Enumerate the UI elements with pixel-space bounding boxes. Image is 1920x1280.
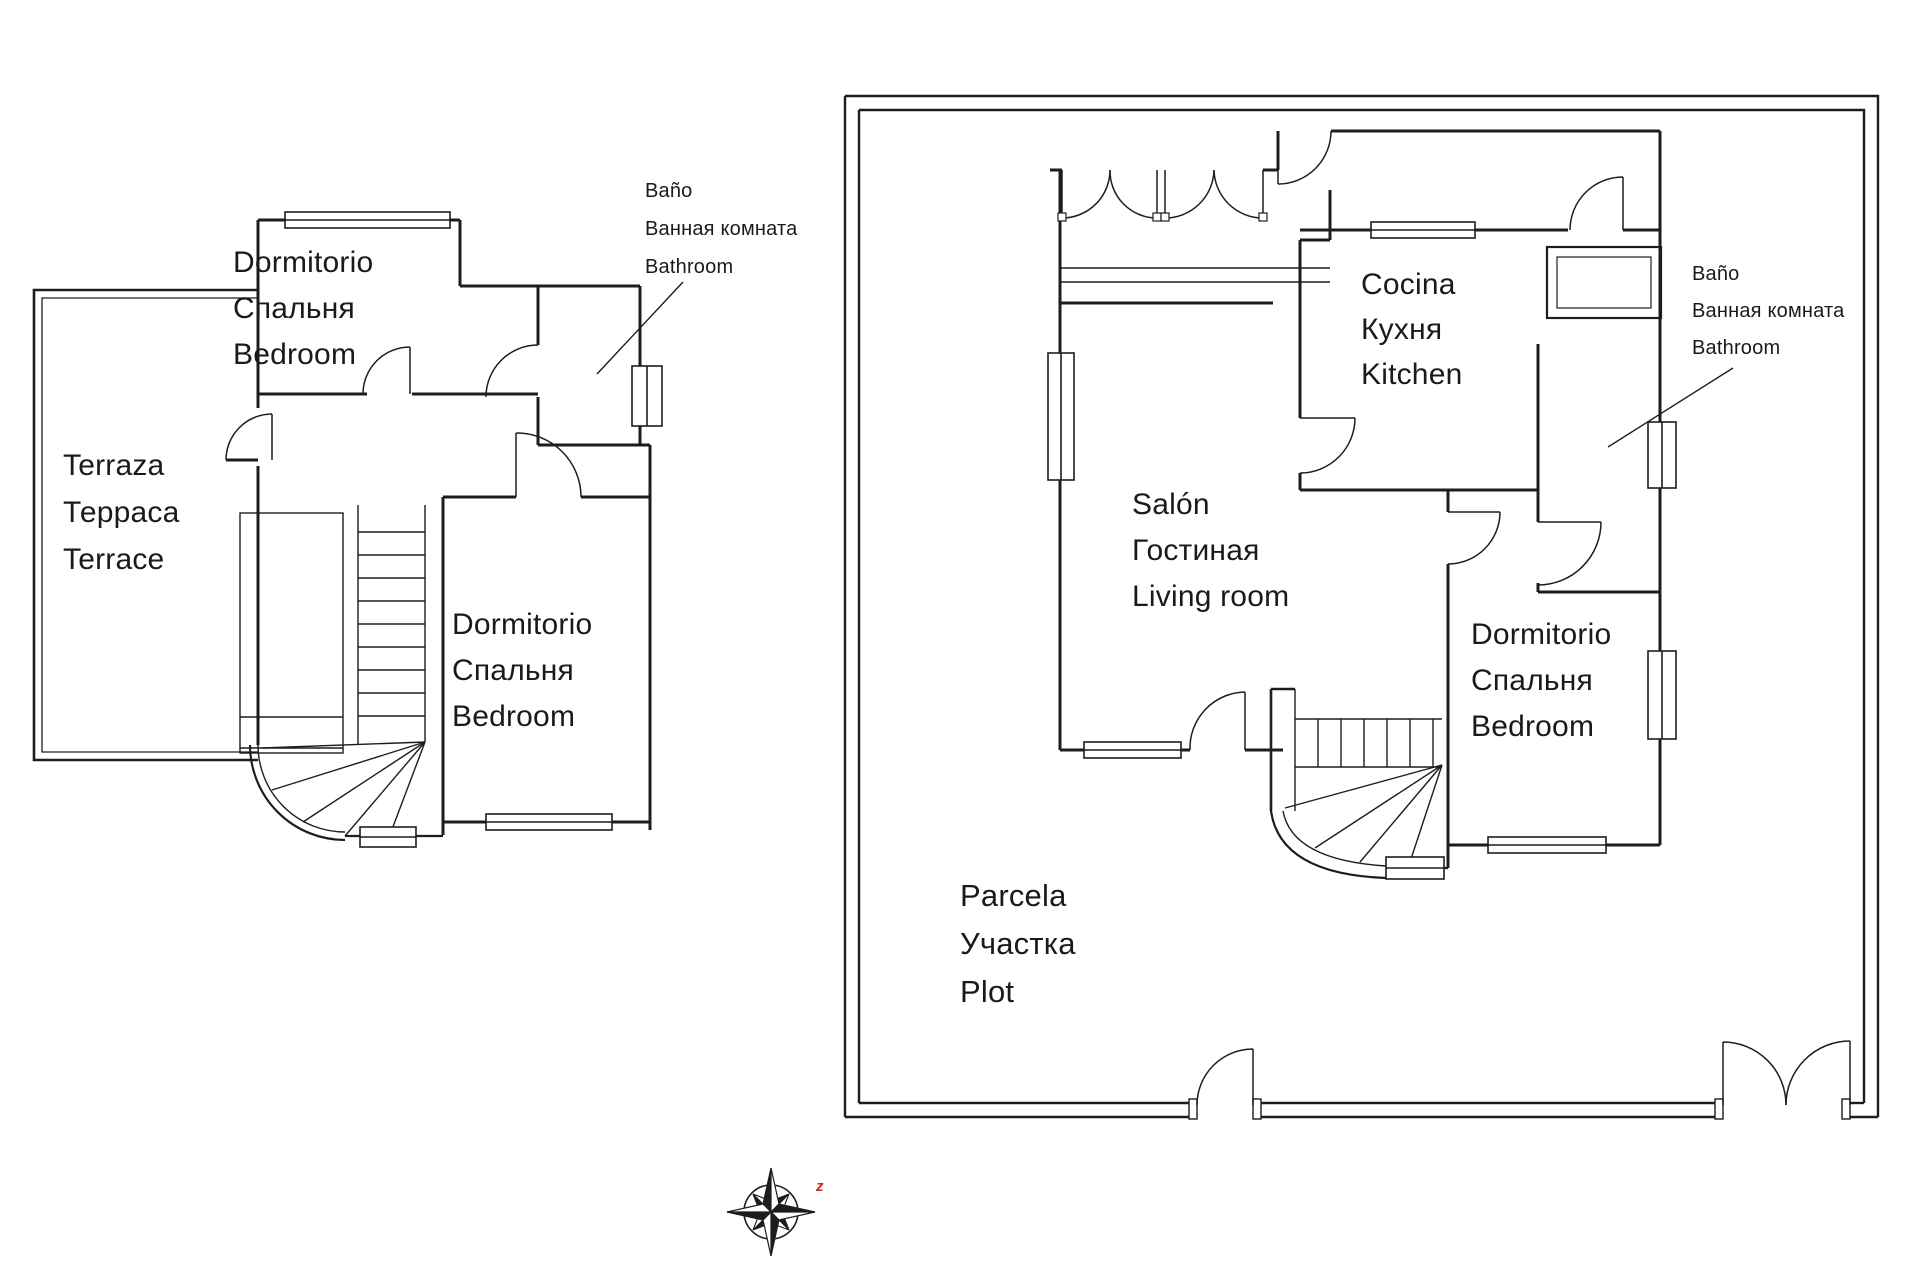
annotation-line: Ванная комната [1692,293,1845,330]
room-label-line: Bedroom [452,694,592,740]
room-label-line: Plot [960,968,1076,1016]
room-label-line: Cocina [1361,262,1462,307]
room-label-line: Кухня [1361,307,1462,352]
annotation-line: Ванная комната [645,210,798,248]
ground-stairs [1271,689,1448,878]
room-label-line: Dormitorio [452,602,592,648]
room-label-line: Участка [960,920,1076,968]
annotation-line: Bathroom [645,248,798,286]
annotation-line: Bathroom [1692,330,1845,367]
annotation-line: Baño [1692,256,1845,293]
door-arc [1570,177,1623,230]
room-label-line: Bedroom [1471,704,1611,750]
room-label-bedroom2-upper: Dormitorio Спальня Bedroom [452,602,592,740]
room-label-kitchen: Cocina Кухня Kitchen [1361,262,1462,397]
upper-stairs [240,505,425,840]
room-label-bedroom-upper: Dormitorio Спальня Bedroom [233,240,373,378]
room-label-terrace: Terraza Терраса Terrace [63,442,179,583]
door-arc [1538,522,1601,585]
room-label-line: Kitchen [1361,352,1462,397]
door-arc [1110,170,1157,218]
room-label-plot: Parcela Участка Plot [960,872,1076,1016]
room-label-line: Dormitorio [233,240,373,286]
room-label-line: Terraza [63,442,179,489]
room-label-line: Спальня [233,286,373,332]
room-label-line: Гостиная [1132,528,1289,574]
floor-plan-drawing [0,0,1920,1280]
room-label-line: Спальня [1471,658,1611,704]
compass-north-mark: z [816,1178,824,1195]
room-label-line: Salón [1132,482,1289,528]
annotation-line: Baño [645,172,798,210]
room-label-line: Living room [1132,574,1289,620]
door-arc [1448,512,1500,564]
plot-gates [1197,1041,1850,1105]
door-arc [486,345,538,397]
door-arc [1190,692,1245,750]
room-label-line: Dormitorio [1471,612,1611,658]
annotation-bathroom-upper: Baño Ванная комната Bathroom [645,172,798,286]
annotation-bathroom-ground: Baño Ванная комната Bathroom [1692,256,1845,367]
room-label-living-room: Salón Гостиная Living room [1132,482,1289,620]
room-label-line: Terrace [63,536,179,583]
door-arc [1165,170,1214,218]
room-label-line: Спальня [452,648,592,694]
floor-plan-page: Dormitorio Спальня Bedroom Baño Ванная к… [0,0,1920,1280]
door-arc [1214,170,1263,218]
compass-rose [727,1168,815,1256]
gate-arc [1723,1042,1786,1105]
door-arc [226,414,272,460]
door-arc [1278,131,1331,184]
room-label-line: Parcela [960,872,1076,920]
gate-arc [1786,1041,1850,1105]
room-label-bedroom-ground: Dormitorio Спальня Bedroom [1471,612,1611,750]
porch-doors [1058,170,1267,221]
door-arc [1300,418,1355,473]
room-label-line: Терраса [63,489,179,536]
door-arc [516,433,581,497]
room-label-line: Bedroom [233,332,373,378]
door-arc [1062,170,1110,218]
gate-arc [1197,1049,1253,1105]
